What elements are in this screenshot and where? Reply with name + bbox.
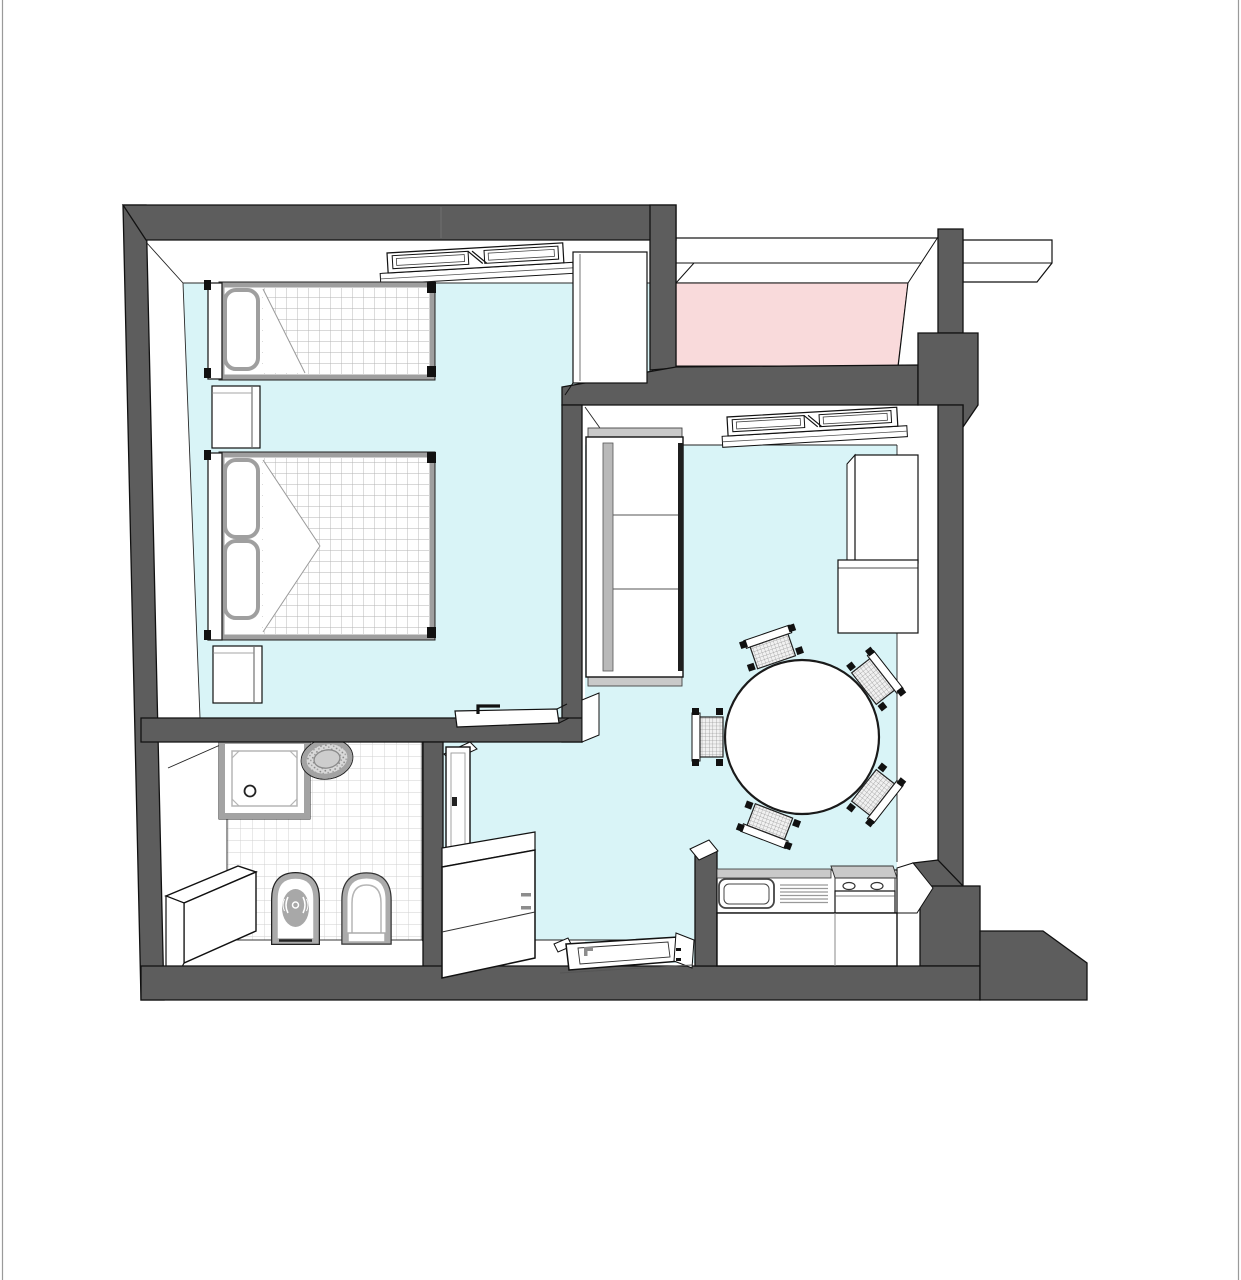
cooktop-stove	[831, 866, 897, 913]
refrigerator-cabinet	[442, 832, 535, 978]
kitchen-sink-basin	[724, 884, 769, 904]
single-bed	[204, 280, 436, 380]
nightstand-1	[212, 386, 260, 448]
three-seat-sofa	[586, 428, 683, 686]
side-desk	[838, 560, 918, 633]
fridge-handle	[521, 906, 531, 910]
sofa-backrest	[603, 443, 613, 671]
pillow	[225, 541, 258, 618]
tall-cabinet	[847, 455, 918, 571]
door-handle	[452, 797, 457, 806]
kitchen-half-wall	[695, 852, 717, 966]
bathroom-right-wall	[423, 742, 443, 968]
fridge-handle	[521, 893, 531, 897]
balcony-floor	[676, 283, 908, 366]
balcony-left-wall	[650, 205, 676, 370]
bottom-wall	[141, 966, 980, 1000]
balcony-parapet	[676, 238, 938, 283]
bathroom	[146, 735, 443, 999]
headboard	[208, 283, 222, 379]
outer-ledge	[963, 240, 1052, 282]
shower-drain	[245, 786, 256, 797]
floor-plan-drawing	[0, 0, 1241, 1280]
wall-end-cap	[582, 693, 599, 742]
pillow	[225, 460, 258, 537]
shower-tray	[219, 738, 310, 819]
nightstand-2	[213, 646, 262, 703]
headboard	[208, 453, 222, 640]
bedroom-living-wall	[562, 405, 582, 742]
backsplash	[717, 869, 831, 878]
bidet	[275, 876, 316, 941]
toilet-base	[348, 933, 385, 942]
sofa-front-edge	[678, 443, 683, 671]
counter-front	[717, 913, 897, 966]
right-wall	[938, 405, 963, 890]
toilet	[345, 876, 388, 942]
floor-plan-canvas	[0, 0, 1241, 1280]
top-wall	[123, 205, 676, 240]
dining-chair-left	[692, 708, 723, 766]
right-wall-base	[920, 886, 980, 966]
wardrobe	[565, 252, 647, 395]
pillow	[225, 290, 258, 369]
round-dining-table	[725, 660, 879, 814]
right-wall-upper	[938, 229, 963, 333]
double-bed	[204, 450, 436, 640]
oven-front	[835, 891, 895, 913]
